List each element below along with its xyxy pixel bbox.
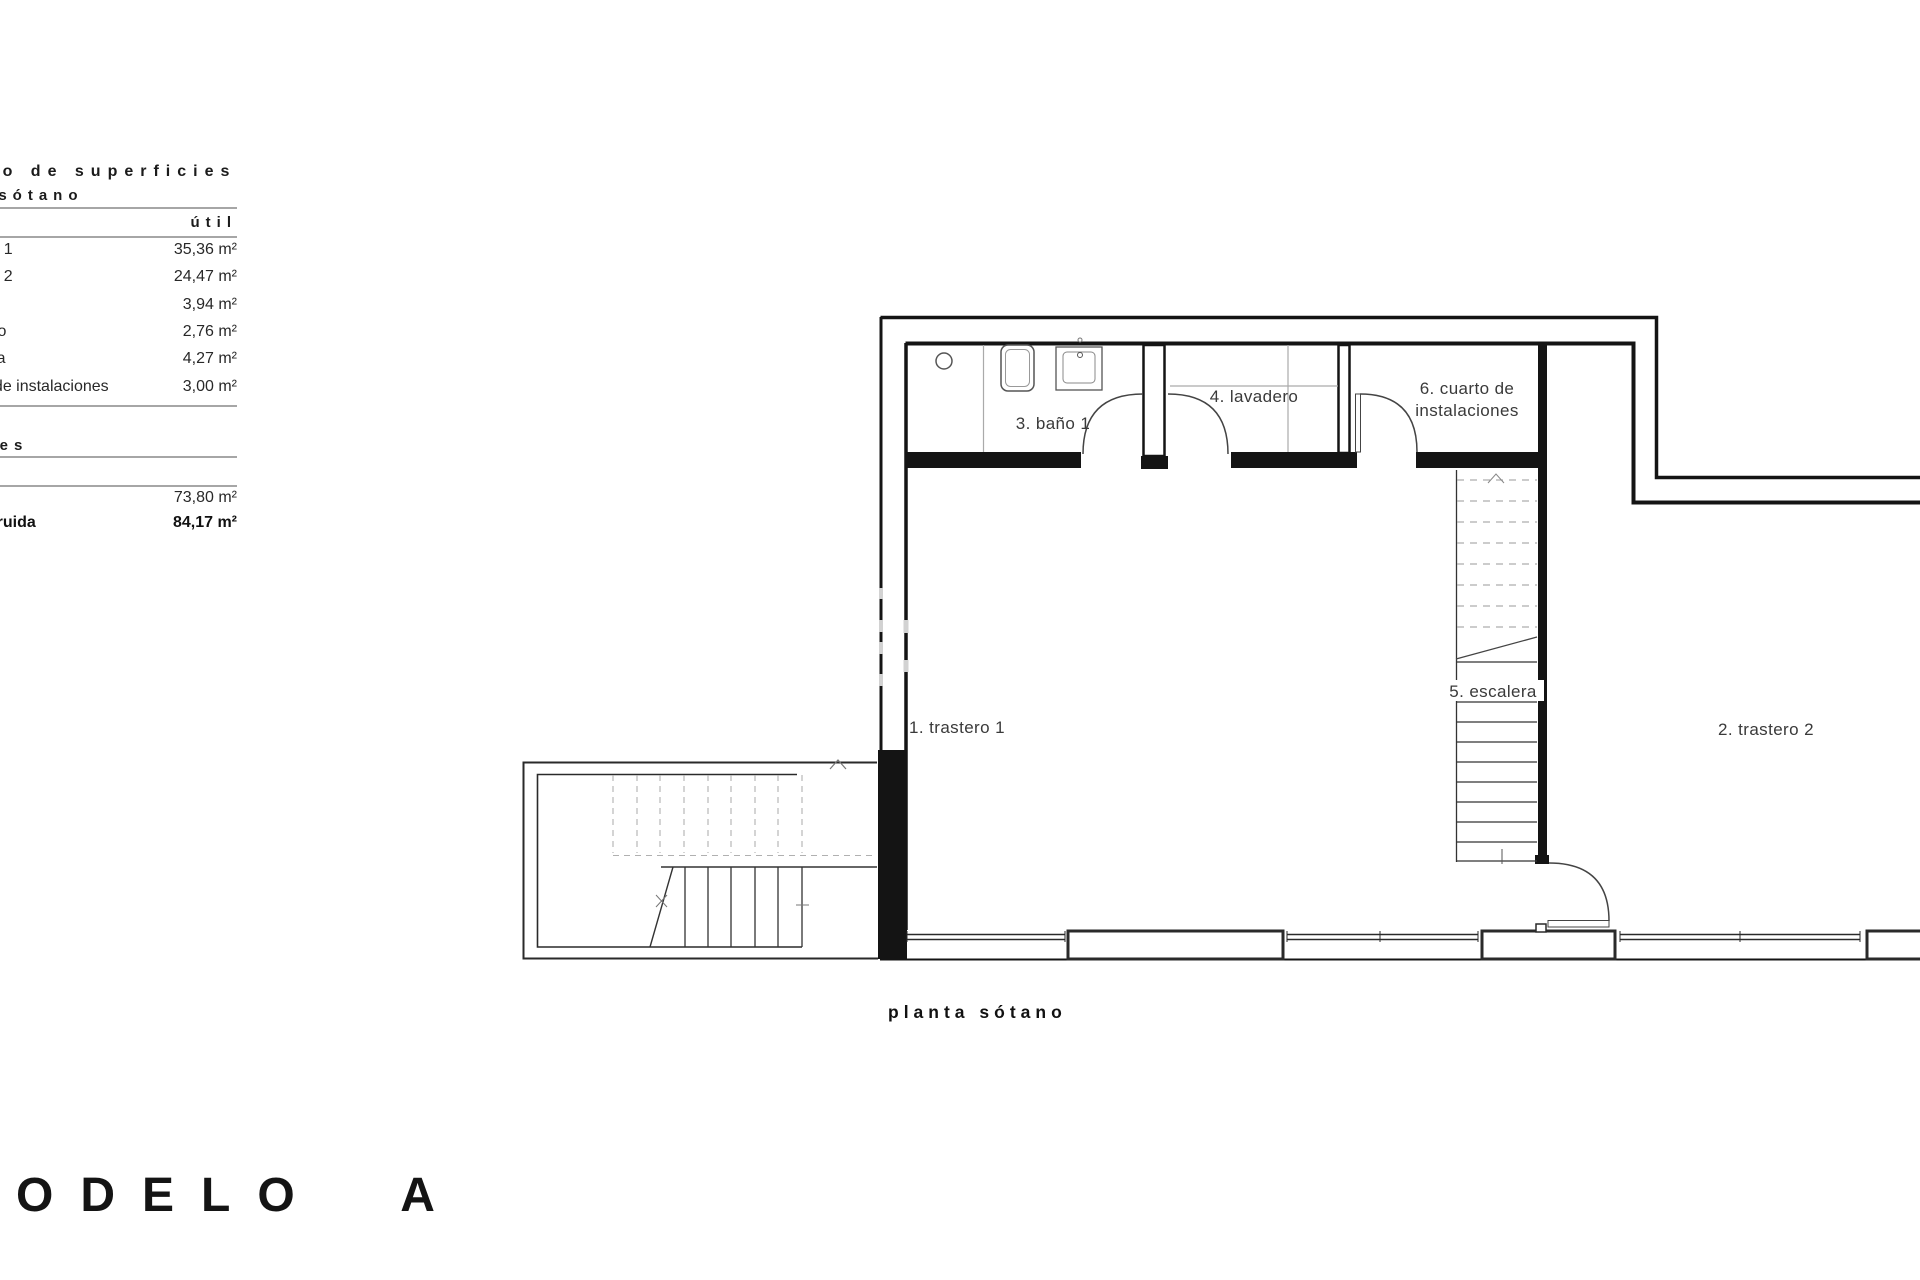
room-labels: 1. trastero 1 2. trastero 2 3. baño 1 4.… [888, 379, 1814, 1022]
external-stair-cut-line [650, 867, 673, 947]
window-box [1867, 931, 1920, 959]
external-stair [524, 760, 879, 959]
bathtub-inner [1006, 350, 1030, 387]
model-title: MODELO A [0, 1168, 462, 1223]
room-label-trastero1: 1. trastero 1 [909, 718, 1005, 737]
utility-door-arc [1360, 394, 1417, 452]
glazing-ticks [907, 931, 1860, 942]
room-label-lavadero: 4. lavadero [1210, 387, 1299, 406]
bottom-wall-windows [907, 924, 1920, 959]
room-label-instalaciones-1: 6. cuarto de [1420, 379, 1515, 398]
room-label-instalaciones-2: instalaciones [1415, 401, 1518, 420]
room-label-bano1: 3. baño 1 [1016, 414, 1091, 433]
toilet-icon [936, 353, 952, 369]
utility-door-leaf [1356, 394, 1361, 452]
door-jamb-notch [1536, 924, 1546, 932]
stair-caret-tick [1488, 474, 1504, 483]
floor-plan: 1. trastero 1 2. trastero 2 3. baño 1 4.… [0, 0, 1920, 1280]
bathroom-door-arc [1083, 394, 1143, 454]
window-box [1482, 931, 1615, 959]
external-lower-flight-treads [685, 867, 802, 947]
stair-exit-door-leaf [1548, 921, 1609, 928]
room-label-escalera: 5. escalera [1449, 682, 1537, 701]
door-arcs [1083, 394, 1609, 927]
external-stair-caret [830, 760, 846, 769]
external-upper-flight-dashed [613, 775, 877, 856]
bathroom-fixtures [936, 338, 1102, 452]
room-label-trastero2: 2. trastero 2 [1718, 720, 1814, 739]
stair-break-line [1456, 637, 1537, 659]
interior-partitions [906, 343, 1549, 864]
watermark-marks [881, 588, 906, 686]
stair-exit-door-arc [1549, 863, 1609, 921]
window-box [1068, 931, 1283, 959]
sink-basin [1063, 352, 1095, 383]
glazing-lines [907, 935, 1860, 940]
plan-caption: planta sótano [888, 1002, 1067, 1022]
wall-dot [1078, 338, 1082, 342]
internal-stair [1456, 470, 1537, 864]
faucet-dot [1078, 353, 1083, 358]
upper-flight-dashed-treads [1457, 480, 1537, 627]
